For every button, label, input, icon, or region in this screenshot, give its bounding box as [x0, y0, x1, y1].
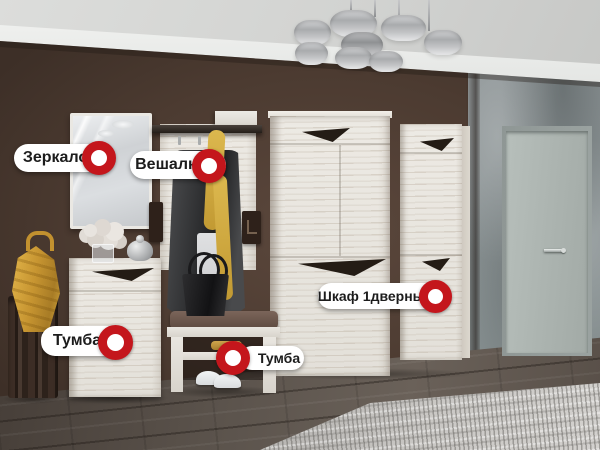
silver-jar	[127, 240, 153, 261]
wall-hook-panel	[149, 202, 163, 242]
chandelier-rod	[428, 0, 430, 31]
door-handle-dot	[561, 248, 566, 253]
coat-hook	[178, 136, 181, 145]
silver-jar-knob	[136, 235, 144, 243]
hotspot-marker-icon[interactable]	[82, 141, 116, 175]
wardrobe-seam	[400, 254, 462, 256]
wardrobe-2-door	[270, 116, 390, 376]
mirror-reflection	[98, 130, 114, 137]
door	[506, 131, 588, 353]
chandelier-drum	[335, 47, 372, 69]
bench-frame	[167, 327, 280, 337]
chandelier-drum	[381, 15, 426, 41]
hallway-furniture-scene: Зеркало Вешалка Тумба Шкаф 1дверный Тумб…	[0, 0, 600, 450]
chandelier-rod	[374, 0, 376, 17]
glass-vase	[92, 244, 114, 263]
cabinet-seam	[69, 290, 161, 292]
hotspot-marker-icon[interactable]	[216, 341, 250, 375]
wardrobe-1-door-side	[462, 126, 470, 358]
coat-hook	[198, 136, 201, 145]
coat-rack-shelf	[152, 125, 262, 133]
sneaker	[214, 374, 241, 388]
hotspot-marker-icon[interactable]	[192, 149, 226, 183]
hotspot-label-text: Тумба	[258, 350, 300, 366]
hotspot-label-text: Зеркало	[23, 149, 88, 167]
hotspot-marker-icon[interactable]	[98, 325, 133, 360]
coat-rack-top-box	[215, 111, 257, 126]
chandelier-drum	[369, 51, 403, 72]
chandelier-drum	[295, 42, 328, 65]
wardrobe-seam	[400, 152, 462, 154]
chandelier-drum	[424, 30, 462, 55]
wardrobe-seam	[270, 256, 390, 258]
wardrobe-seam	[270, 143, 390, 145]
hotspot-label-text: Шкаф 1дверный	[318, 288, 433, 304]
handbag	[182, 274, 229, 316]
wardrobe-seam	[339, 145, 341, 256]
umbrella-handle	[26, 231, 54, 251]
wardrobe-1-door	[400, 124, 462, 360]
wall-hook	[247, 220, 257, 234]
mirror-reflection	[112, 120, 134, 129]
hotspot-label-text: Тумба	[53, 332, 101, 350]
flower-bouquet	[84, 224, 97, 237]
hotspot-marker-icon[interactable]	[419, 280, 452, 313]
bench-leg	[171, 337, 183, 392]
